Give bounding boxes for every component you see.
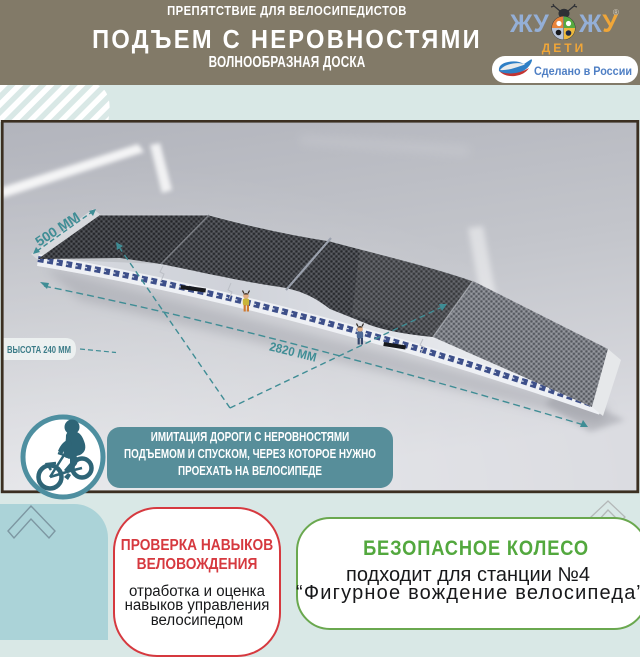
svg-text:ВЫСОТА 240 ММ: ВЫСОТА 240 ММ [7, 345, 71, 356]
